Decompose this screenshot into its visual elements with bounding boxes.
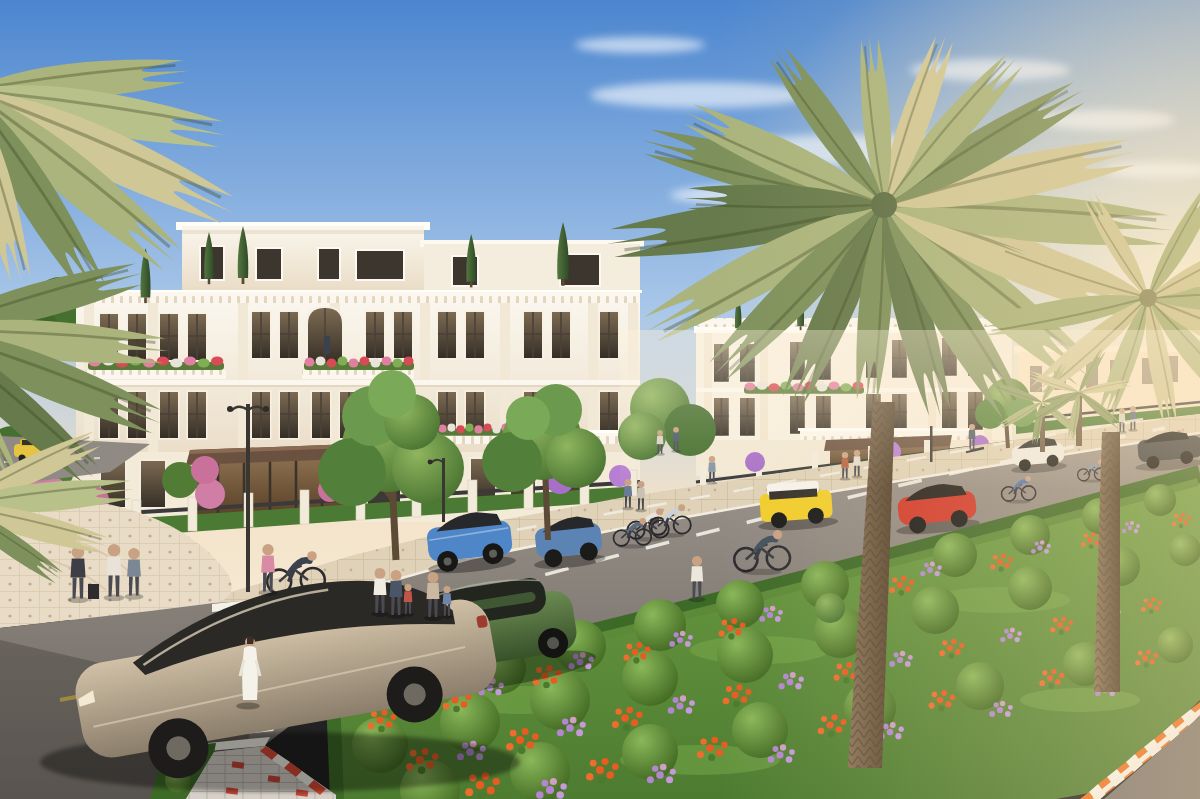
suitcase	[88, 584, 99, 599]
villa-boulevard-rendering: Sunlit 3D architectural rendering of a l…	[0, 0, 1200, 799]
warm-sunlight-wash	[720, 0, 1200, 799]
person-on-balcony	[324, 336, 330, 354]
rendered-architectural-scene: Sunlit 3D architectural rendering of a l…	[0, 0, 1200, 799]
